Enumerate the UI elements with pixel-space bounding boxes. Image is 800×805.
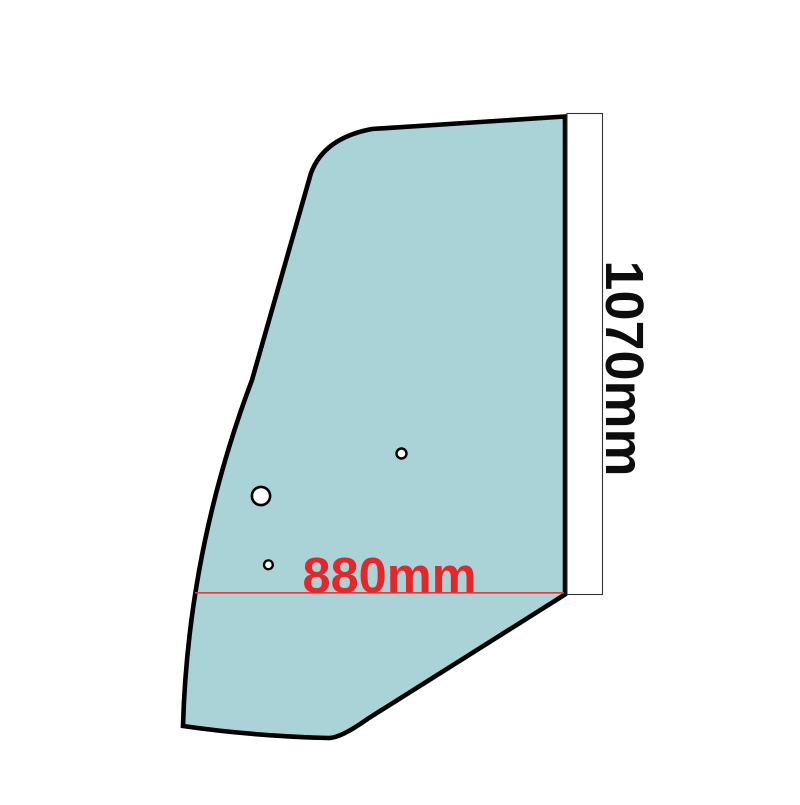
svg-text:880mm: 880mm: [303, 547, 477, 604]
svg-text:1070mm: 1070mm: [594, 260, 654, 476]
